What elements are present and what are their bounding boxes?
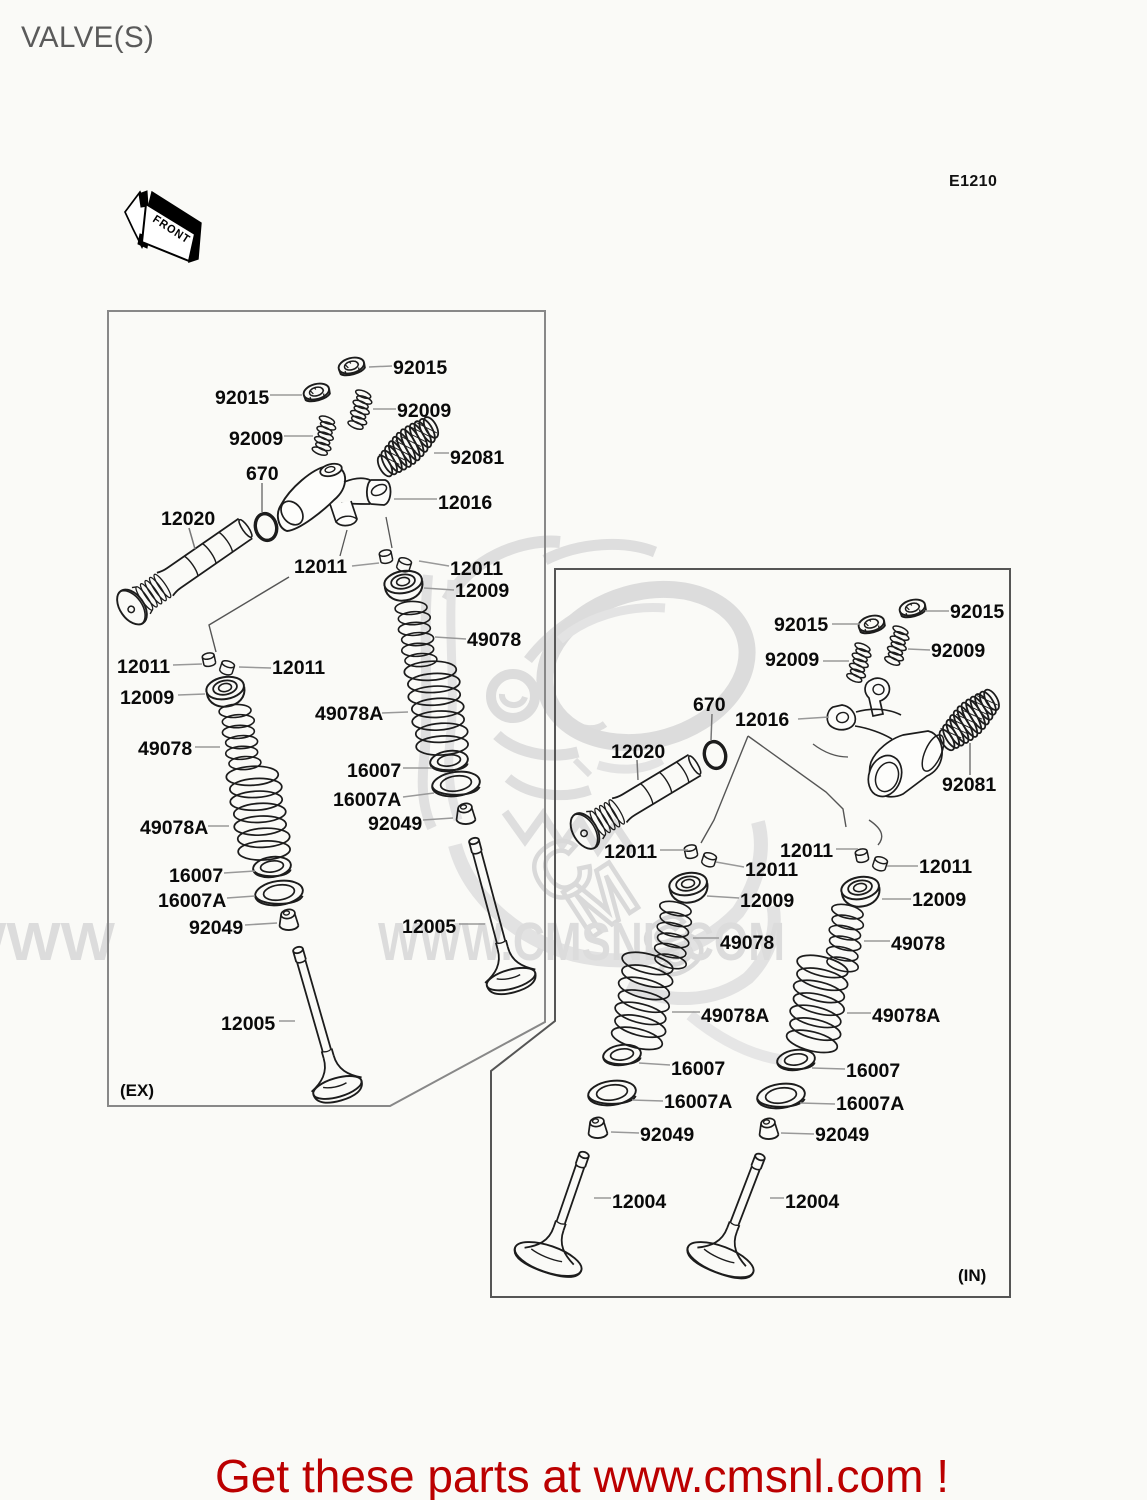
- svg-text:49078A: 49078A: [140, 817, 208, 839]
- svg-text:16007: 16007: [169, 865, 223, 887]
- svg-text:12004: 12004: [612, 1191, 666, 1213]
- svg-text:12011: 12011: [919, 856, 972, 878]
- svg-text:16007: 16007: [846, 1060, 900, 1082]
- svg-text:92049: 92049: [640, 1124, 694, 1146]
- svg-text:16007: 16007: [671, 1058, 725, 1080]
- svg-text:92015: 92015: [393, 357, 447, 379]
- svg-text:12011: 12011: [117, 656, 170, 678]
- svg-text:49078: 49078: [138, 738, 192, 760]
- svg-text:49078: 49078: [720, 932, 774, 954]
- svg-text:92015: 92015: [950, 601, 1004, 623]
- svg-text:12009: 12009: [912, 889, 966, 911]
- svg-text:16007: 16007: [347, 760, 401, 782]
- svg-text:VALVE(S): VALVE(S): [21, 21, 154, 54]
- svg-text:WWW: WWW: [0, 912, 115, 972]
- svg-text:12020: 12020: [611, 741, 665, 763]
- svg-text:12011: 12011: [272, 657, 325, 679]
- svg-text:16007A: 16007A: [158, 890, 226, 912]
- svg-text:92049: 92049: [368, 813, 422, 835]
- svg-text:(EX): (EX): [120, 1081, 154, 1100]
- svg-text:49078: 49078: [467, 629, 521, 651]
- svg-text:49078A: 49078A: [701, 1005, 769, 1027]
- svg-text:12009: 12009: [740, 890, 794, 912]
- svg-text:(IN): (IN): [958, 1266, 986, 1285]
- svg-text:12011: 12011: [604, 841, 657, 863]
- svg-text:670: 670: [246, 463, 279, 485]
- svg-text:49078A: 49078A: [872, 1005, 940, 1027]
- svg-text:12005: 12005: [402, 916, 456, 938]
- svg-text:92049: 92049: [189, 917, 243, 939]
- svg-text:12011: 12011: [450, 558, 503, 580]
- svg-text:12016: 12016: [735, 709, 789, 731]
- svg-text:92015: 92015: [215, 387, 269, 409]
- svg-text:92015: 92015: [774, 614, 828, 636]
- svg-text:16007A: 16007A: [333, 789, 401, 811]
- svg-text:92081: 92081: [450, 447, 504, 469]
- svg-text:12004: 12004: [785, 1191, 839, 1213]
- svg-text:16007A: 16007A: [836, 1093, 904, 1115]
- svg-text:49078A: 49078A: [315, 703, 383, 725]
- svg-text:12011: 12011: [745, 859, 798, 881]
- svg-text:12016: 12016: [438, 492, 492, 514]
- svg-text:12011: 12011: [780, 840, 833, 862]
- svg-text:92009: 92009: [765, 649, 819, 671]
- svg-text:16007A: 16007A: [664, 1091, 732, 1113]
- svg-text:92009: 92009: [229, 428, 283, 450]
- svg-text:12009: 12009: [455, 580, 509, 602]
- svg-text:670: 670: [693, 694, 726, 716]
- svg-text:12009: 12009: [120, 687, 174, 709]
- svg-text:12005: 12005: [221, 1013, 275, 1035]
- svg-text:92081: 92081: [942, 774, 996, 796]
- svg-text:12011: 12011: [294, 556, 347, 578]
- svg-text:92009: 92009: [931, 640, 985, 662]
- svg-text:92049: 92049: [815, 1124, 869, 1146]
- svg-text:12020: 12020: [161, 508, 215, 530]
- svg-text:Get these parts at www.cmsnl.c: Get these parts at www.cmsnl.com !: [215, 1450, 949, 1500]
- svg-text:49078: 49078: [891, 933, 945, 955]
- svg-text:E1210: E1210: [949, 173, 997, 190]
